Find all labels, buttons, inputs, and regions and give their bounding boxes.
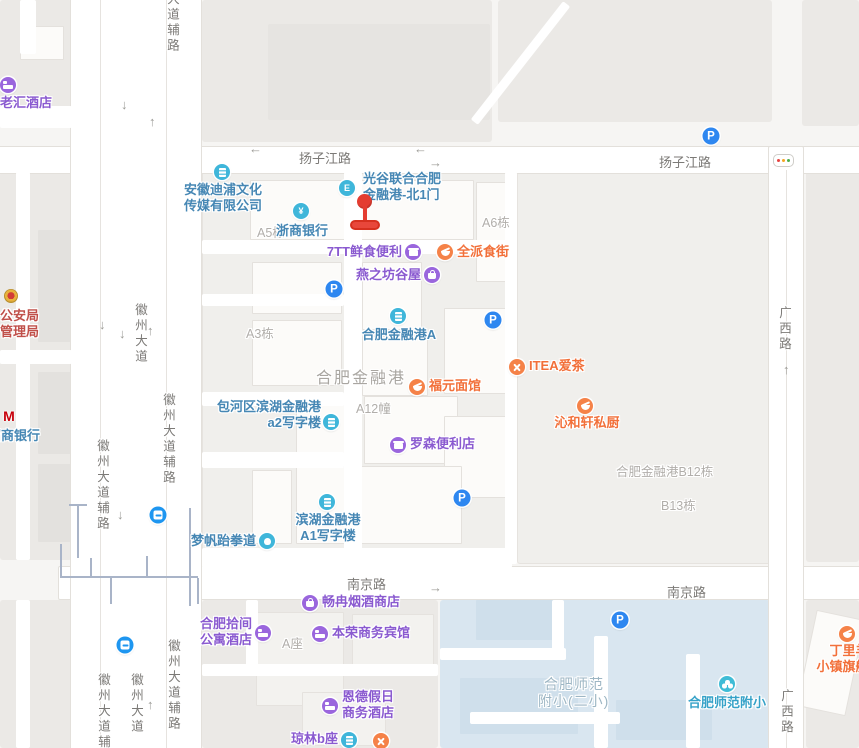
parking-icon[interactable]: P: [612, 612, 629, 629]
area-label: A6栋: [482, 212, 510, 231]
poi-label[interactable]: 老汇酒店: [0, 95, 52, 111]
poi-label-line: 琼林b座: [291, 731, 338, 747]
poi-label-line: 罗森便利店: [410, 436, 475, 452]
traffic-light-green-dot: [787, 159, 791, 163]
road-label: 徽州大道辅路: [93, 439, 112, 532]
underground-passage-line: [62, 576, 198, 578]
poi-label[interactable]: 招商银行: [0, 428, 40, 444]
minor-road: [202, 452, 344, 468]
area-label: 附小(二小): [538, 691, 609, 711]
poi-label-line: 公寓酒店: [200, 632, 252, 648]
food-street-icon[interactable]: [437, 244, 453, 260]
liquor-store-icon[interactable]: [302, 595, 318, 611]
traffic-direction-arrow-icon: →: [429, 155, 442, 170]
poi-label-line: 合肥师范附小: [688, 695, 766, 711]
building-footprint: [352, 614, 434, 668]
poi-label-line: 小镇旗舰店: [816, 659, 859, 675]
taekwondo-icon[interactable]: [259, 533, 275, 549]
poi-label-line: 福元面馆: [429, 378, 481, 394]
gate-icon[interactable]: E: [339, 180, 355, 196]
minor-road: [20, 0, 36, 54]
cmb-bank-icon-glyph: M: [3, 408, 15, 424]
poi-label[interactable]: 7TT鲜食便利: [327, 244, 402, 260]
poi-label-line: 传媒有限公司: [184, 198, 262, 214]
poi-label[interactable]: 琼林b座: [291, 731, 338, 747]
traffic-direction-arrow-icon: ↓: [99, 317, 106, 332]
poi-label[interactable]: 安徽迪浦文化传媒有限公司: [184, 182, 262, 214]
poi-label[interactable]: 合肥金融港A: [362, 327, 436, 343]
parking-icon[interactable]: P: [326, 281, 343, 298]
traffic-direction-arrow-icon: ←: [414, 141, 427, 156]
area-label: A座: [282, 633, 303, 652]
parking-icon[interactable]: P: [454, 490, 471, 507]
underground-passage-line: [69, 504, 87, 506]
road-label: 徽州大道辅路: [159, 393, 178, 486]
road-label: 广西路: [777, 689, 796, 736]
minor-road: [202, 294, 344, 306]
building-footprint: [252, 470, 292, 544]
poi-label-line: 招商银行: [0, 428, 40, 444]
hotel-icon[interactable]: [255, 625, 271, 641]
city-block: [0, 600, 72, 748]
hotel-icon[interactable]: [0, 77, 16, 93]
traffic-direction-arrow-icon: ↑: [147, 697, 154, 712]
poi-label-line: a2写字楼: [217, 415, 321, 431]
poi-label-line: 丁里羊: [816, 643, 859, 659]
traffic-light-yellow-dot: [782, 159, 786, 163]
area-label: B13栋: [661, 495, 696, 514]
poi-label-line: ITEA爱茶: [529, 358, 585, 374]
poi-label-line: 管理局: [0, 324, 39, 340]
underground-passage-line: [90, 558, 92, 578]
poi-label[interactable]: ITEA爱茶: [529, 358, 585, 374]
building-icon[interactable]: [390, 308, 406, 324]
cmb-bank-icon[interactable]: M: [1, 408, 17, 424]
poi-label[interactable]: 合肥拾间公寓酒店: [200, 616, 252, 648]
poi-label-line: 全派食街: [457, 244, 509, 260]
area-label: 合肥金融港B12栋: [616, 461, 713, 480]
restaurant-icon[interactable]: [577, 398, 593, 414]
poi-label[interactable]: 福元面馆: [429, 378, 481, 394]
traffic-light-icon: [773, 154, 794, 167]
poi-label-line: 金融港-北1门: [363, 187, 441, 203]
poi-label-line: 滨湖金融港: [295, 512, 360, 528]
road-label: 徽州大道辅路: [94, 673, 113, 748]
minor-road: [0, 350, 72, 364]
road-label: 扬子江路: [299, 148, 351, 167]
shopping-bag-icon[interactable]: [424, 267, 440, 283]
underground-passage-line: [60, 544, 62, 578]
area-label: A3栋: [246, 323, 274, 342]
poi-label-line: 恩德假日: [342, 689, 394, 705]
traffic-direction-arrow-icon: ↓: [121, 97, 128, 112]
traffic-direction-arrow-icon: ↑: [149, 114, 156, 129]
poi-label-line: 安徽迪浦文化: [184, 182, 262, 198]
poi-label-line: 沁和轩私厨: [554, 415, 619, 431]
poi-label[interactable]: 合肥师范附小: [688, 695, 766, 711]
underground-passage-line: [146, 556, 148, 578]
poi-label-line: A1写字楼: [295, 528, 360, 544]
road-label: 徽州大道: [131, 303, 150, 365]
restaurant-icon[interactable]: [839, 626, 855, 642]
poi-label[interactable]: 滨湖金融港A1写字楼: [295, 512, 360, 544]
poi-label-line: 公安局: [0, 308, 39, 324]
city-block: [268, 24, 490, 120]
poi-label[interactable]: 恩德假日商务酒店: [342, 689, 394, 721]
poi-label[interactable]: 本荣商务宾馆: [332, 625, 410, 641]
underground-passage-line: [110, 578, 112, 604]
road-label: 广西路: [775, 306, 794, 353]
school-icon[interactable]: [719, 676, 735, 692]
road-label: 大道辅路: [163, 0, 182, 54]
city-block: [806, 170, 859, 562]
building-icon[interactable]: [319, 494, 335, 510]
building-icon[interactable]: [341, 732, 357, 748]
company-building-icon[interactable]: [214, 164, 230, 180]
building-icon[interactable]: [323, 414, 339, 430]
poi-label[interactable]: 畅冉烟酒商店: [322, 594, 400, 610]
poi-label-line: 本荣商务宾馆: [332, 625, 410, 641]
minor-road: [16, 600, 30, 748]
area-label: A12幢: [356, 398, 391, 417]
restaurant-icon[interactable]: [409, 379, 425, 395]
area-label: 合肥金融港: [316, 364, 406, 388]
marker-base: [350, 220, 380, 230]
road-label: 徽州大道: [127, 673, 146, 735]
utensils-icon[interactable]: [373, 733, 389, 748]
parking-icon[interactable]: P: [703, 128, 720, 145]
minor-road: [16, 172, 30, 560]
building-footprint: [38, 230, 72, 342]
poi-label-line: 畅冉烟酒商店: [322, 594, 400, 610]
poi-label[interactable]: 光谷联合合肥金融港-北1门: [363, 171, 441, 203]
minor-road: [470, 712, 620, 724]
road-huizhou-avenue: [70, 0, 202, 748]
poi-label[interactable]: 全派食街: [457, 244, 509, 260]
traffic-direction-arrow-icon: ↓: [117, 507, 124, 522]
convenience-store-icon[interactable]: [405, 244, 421, 260]
road-label: 南京路: [347, 574, 386, 593]
police-badge-icon[interactable]: [3, 288, 19, 304]
minor-road: [202, 548, 512, 568]
poi-label-line: 梦帆跆拳道: [191, 533, 256, 549]
traffic-direction-arrow-icon: ↓: [119, 326, 126, 341]
road-label: 扬子江路: [659, 152, 711, 171]
hotel-icon[interactable]: [322, 698, 338, 714]
poi-label[interactable]: 丁里羊小镇旗舰店: [816, 643, 859, 675]
building-footprint: [38, 372, 72, 454]
traffic-direction-arrow-icon: ←: [249, 141, 262, 156]
metro-station-icon[interactable]: [117, 637, 134, 654]
road-lane-line: [786, 170, 787, 748]
poi-label-line: 光谷联合合肥: [363, 171, 441, 187]
road-label: 徽州大道辅路: [164, 639, 183, 732]
poi-label[interactable]: 包河区滨湖金融港a2写字楼: [217, 399, 321, 431]
hotel-icon[interactable]: [312, 626, 328, 642]
poi-label[interactable]: 公安局管理局: [0, 308, 39, 340]
building-footprint: [476, 600, 562, 640]
minor-road: [202, 664, 438, 676]
bank-yuan-icon-glyph: ¥: [298, 206, 303, 216]
road-label: 南京路: [667, 582, 706, 601]
metro-station-icon[interactable]: [150, 507, 167, 524]
poi-label[interactable]: 浙商银行: [276, 223, 328, 239]
poi-label-line: 合肥拾间: [200, 616, 252, 632]
poi-label-line: 合肥金融港A: [362, 327, 436, 343]
poi-label-line: 包河区滨湖金融港: [217, 399, 321, 415]
traffic-light-red-dot: [777, 159, 781, 163]
poi-label-line: 7TT鲜食便利: [327, 244, 402, 260]
underground-passage-line: [197, 578, 199, 604]
poi-label[interactable]: 罗森便利店: [410, 436, 475, 452]
convenience-store-icon[interactable]: [390, 437, 406, 453]
gate-icon-glyph: E: [344, 183, 350, 193]
poi-label[interactable]: 燕之坊谷屋: [356, 267, 421, 283]
poi-label-line: 燕之坊谷屋: [356, 267, 421, 283]
utensils-icon[interactable]: [509, 359, 525, 375]
city-block: [802, 0, 859, 126]
road-lane-line: [166, 0, 167, 748]
poi-label[interactable]: 沁和轩私厨: [554, 415, 619, 431]
poi-label[interactable]: 梦帆跆拳道: [191, 533, 256, 549]
map-canvas[interactable]: 扬子江路扬子江路南京路南京路大道辅路徽州大道徽州大道辅路徽州大道辅路徽州大道辅路…: [0, 0, 859, 748]
city-block: [498, 0, 772, 122]
underground-passage-line: [189, 508, 191, 606]
bank-yuan-icon[interactable]: ¥: [293, 203, 309, 219]
poi-label-line: 老汇酒店: [0, 95, 52, 111]
traffic-direction-arrow-icon: ↑: [783, 362, 790, 377]
traffic-direction-arrow-icon: →: [429, 580, 442, 595]
poi-label-line: 浙商银行: [276, 223, 328, 239]
road-lane-line: [100, 0, 101, 748]
parking-icon[interactable]: P: [485, 312, 502, 329]
building-footprint: [38, 464, 72, 542]
minor-road: [440, 648, 566, 660]
underground-passage-line: [77, 506, 79, 558]
poi-label-line: 商务酒店: [342, 705, 394, 721]
